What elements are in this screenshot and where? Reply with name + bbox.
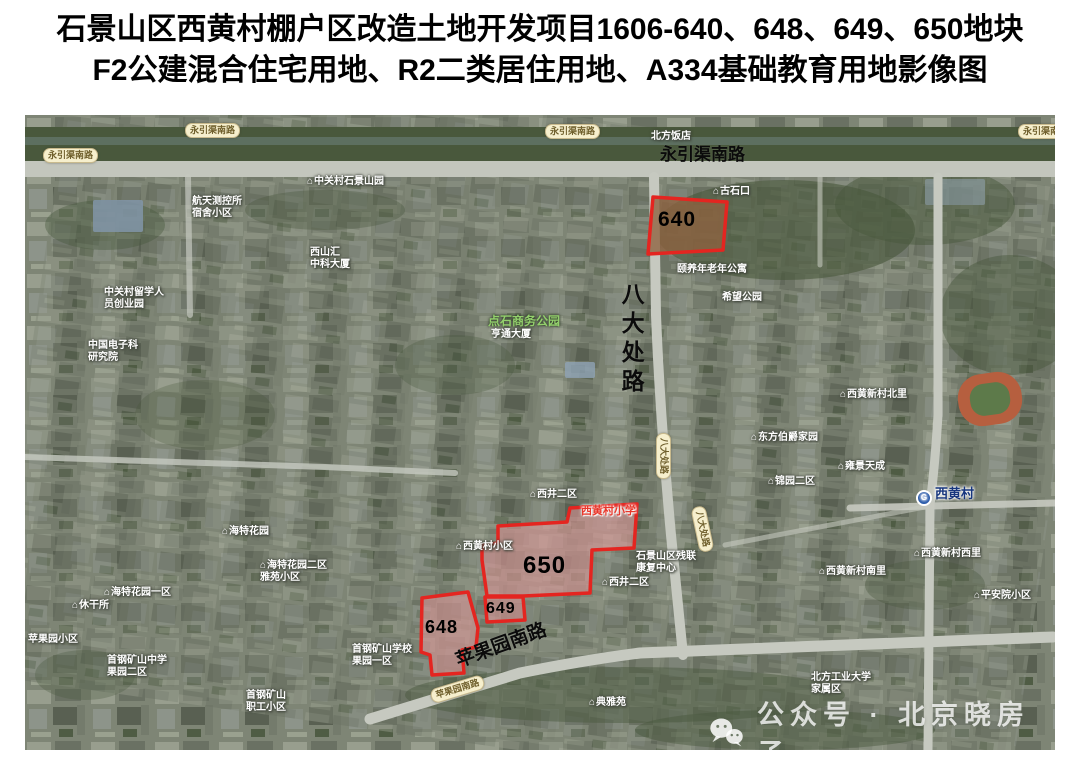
- page-title: 石景山区西黄村棚户区改造土地开发项目1606-640、648、649、650地块…: [0, 10, 1080, 92]
- map-labels: 永引渠南路永引渠南路永引渠南路永引渠南路八大处路八大处路苹果园南路永引渠南路八大…: [25, 115, 1055, 750]
- parcel-number-640: 640: [658, 208, 696, 233]
- map-place-label: ⌂锦园二区: [768, 476, 815, 488]
- title-line-2: F2公建混合住宅用地、R2二类居住用地、A334基础教育用地影像图: [0, 51, 1080, 92]
- road-pill-label: 永引渠南路: [185, 123, 240, 138]
- map-place-label: 首钢矿山中学果园二区: [107, 655, 167, 679]
- poi-house-icon: ⌂: [530, 489, 536, 500]
- map-place-label: 中关村留学人员创业园: [104, 287, 164, 311]
- map-place-label: ⌂西黄新村南里: [819, 566, 886, 578]
- map-place-label: ⌂海特花园一区: [104, 587, 171, 599]
- map-place-label: 航天测控所宿舍小区: [192, 196, 242, 220]
- poi-house-icon: ⌂: [974, 590, 980, 601]
- map-place-label: 首钢矿山职工小区: [246, 690, 286, 714]
- map-place-label: 点石商务公园: [488, 314, 560, 328]
- map-place-label: 石景山区残联康复中心: [636, 551, 696, 575]
- map-place-label: ⌂西黄村小区: [456, 541, 513, 553]
- map-place-label: ⌂休干所: [72, 600, 109, 612]
- poi-house-icon: ⌂: [602, 577, 608, 588]
- map-place-label: 北方饭店: [651, 131, 691, 143]
- poi-house-icon: ⌂: [72, 600, 78, 611]
- map-place-label: ⌂西井二区: [602, 577, 649, 589]
- poi-house-icon: ⌂: [768, 476, 774, 487]
- poi-house-icon: ⌂: [589, 697, 595, 708]
- parcel-number-648: 648: [425, 617, 458, 638]
- map-place-label: ⌂东方伯爵家园: [751, 432, 818, 444]
- map-place-label: ⌂西黄新村北里: [840, 389, 907, 401]
- road-name-label: 苹果园南路: [453, 620, 550, 674]
- parcel-number-650: 650: [523, 552, 566, 580]
- map-place-label: 西山汇中科大厦: [310, 247, 350, 271]
- poi-house-icon: ⌂: [713, 186, 719, 197]
- map-place-label: G西黄村: [916, 486, 974, 506]
- map-place-label: ⌂平安院小区: [974, 590, 1031, 602]
- map-place-label: 颐养年老年公寓: [677, 264, 747, 276]
- map-place-label: 亨通大厦: [491, 329, 531, 341]
- wechat-icon: [709, 717, 744, 748]
- poi-house-icon: ⌂: [914, 548, 920, 559]
- watermark-text: 公众号 · 北京晓房子: [757, 693, 1055, 750]
- satellite-map: 永引渠南路永引渠南路永引渠南路永引渠南路八大处路八大处路苹果园南路永引渠南路八大…: [25, 115, 1055, 750]
- poi-house-icon: ⌂: [307, 176, 313, 187]
- map-place-label: ⌂典雅苑: [589, 697, 626, 709]
- poi-house-icon: ⌂: [456, 541, 462, 552]
- map-place-label: 希望公园: [722, 292, 762, 304]
- poi-house-icon: ⌂: [222, 526, 228, 537]
- poi-house-icon: ⌂: [840, 389, 846, 400]
- road-name-label: 永引渠南路: [660, 145, 745, 165]
- infographic-page: 石景山区西黄村棚户区改造土地开发项目1606-640、648、649、650地块…: [0, 0, 1080, 759]
- map-place-label: ⌂中关村石景山园: [307, 176, 384, 188]
- road-pill-label: 八大处路: [656, 433, 671, 479]
- road-pill-label: 苹果园南路: [429, 674, 486, 704]
- poi-house-icon: ⌂: [260, 560, 266, 571]
- poi-house-icon: ⌂: [838, 461, 844, 472]
- subway-station-icon: G: [916, 490, 932, 506]
- map-place-label: 中国电子科研究院: [88, 340, 138, 364]
- road-pill-label: 永引渠南路: [43, 148, 98, 163]
- map-place-label: 苹果园小区: [28, 634, 78, 646]
- poi-house-icon: ⌂: [819, 566, 825, 577]
- map-place-label: ⌂西黄新村西里: [914, 548, 981, 560]
- road-name-label: 八大处路: [617, 282, 644, 398]
- poi-house-icon: ⌂: [104, 587, 110, 598]
- parcel-number-649: 649: [486, 600, 516, 619]
- wechat-watermark: 公众号 · 北京晓房子: [709, 693, 1055, 750]
- map-place-label: 西黄村小学: [581, 505, 636, 518]
- road-pill-label: 永引渠南路: [545, 124, 600, 139]
- road-pill-label: 八大处路: [690, 505, 714, 553]
- map-place-label: ⌂西井二区: [530, 489, 577, 501]
- poi-house-icon: ⌂: [751, 432, 757, 443]
- map-place-label: ⌂海特花园: [222, 526, 269, 538]
- map-place-label: ⌂海特花园二区雅苑小区: [260, 560, 327, 584]
- title-line-1: 石景山区西黄村棚户区改造土地开发项目1606-640、648、649、650地块: [0, 10, 1080, 51]
- road-pill-label: 永引渠南路: [1018, 124, 1055, 139]
- map-place-label: ⌂古石口: [713, 186, 750, 198]
- map-place-label: ⌂雍景天成: [838, 461, 885, 473]
- map-place-label: 首钢矿山学校果园一区: [352, 644, 412, 668]
